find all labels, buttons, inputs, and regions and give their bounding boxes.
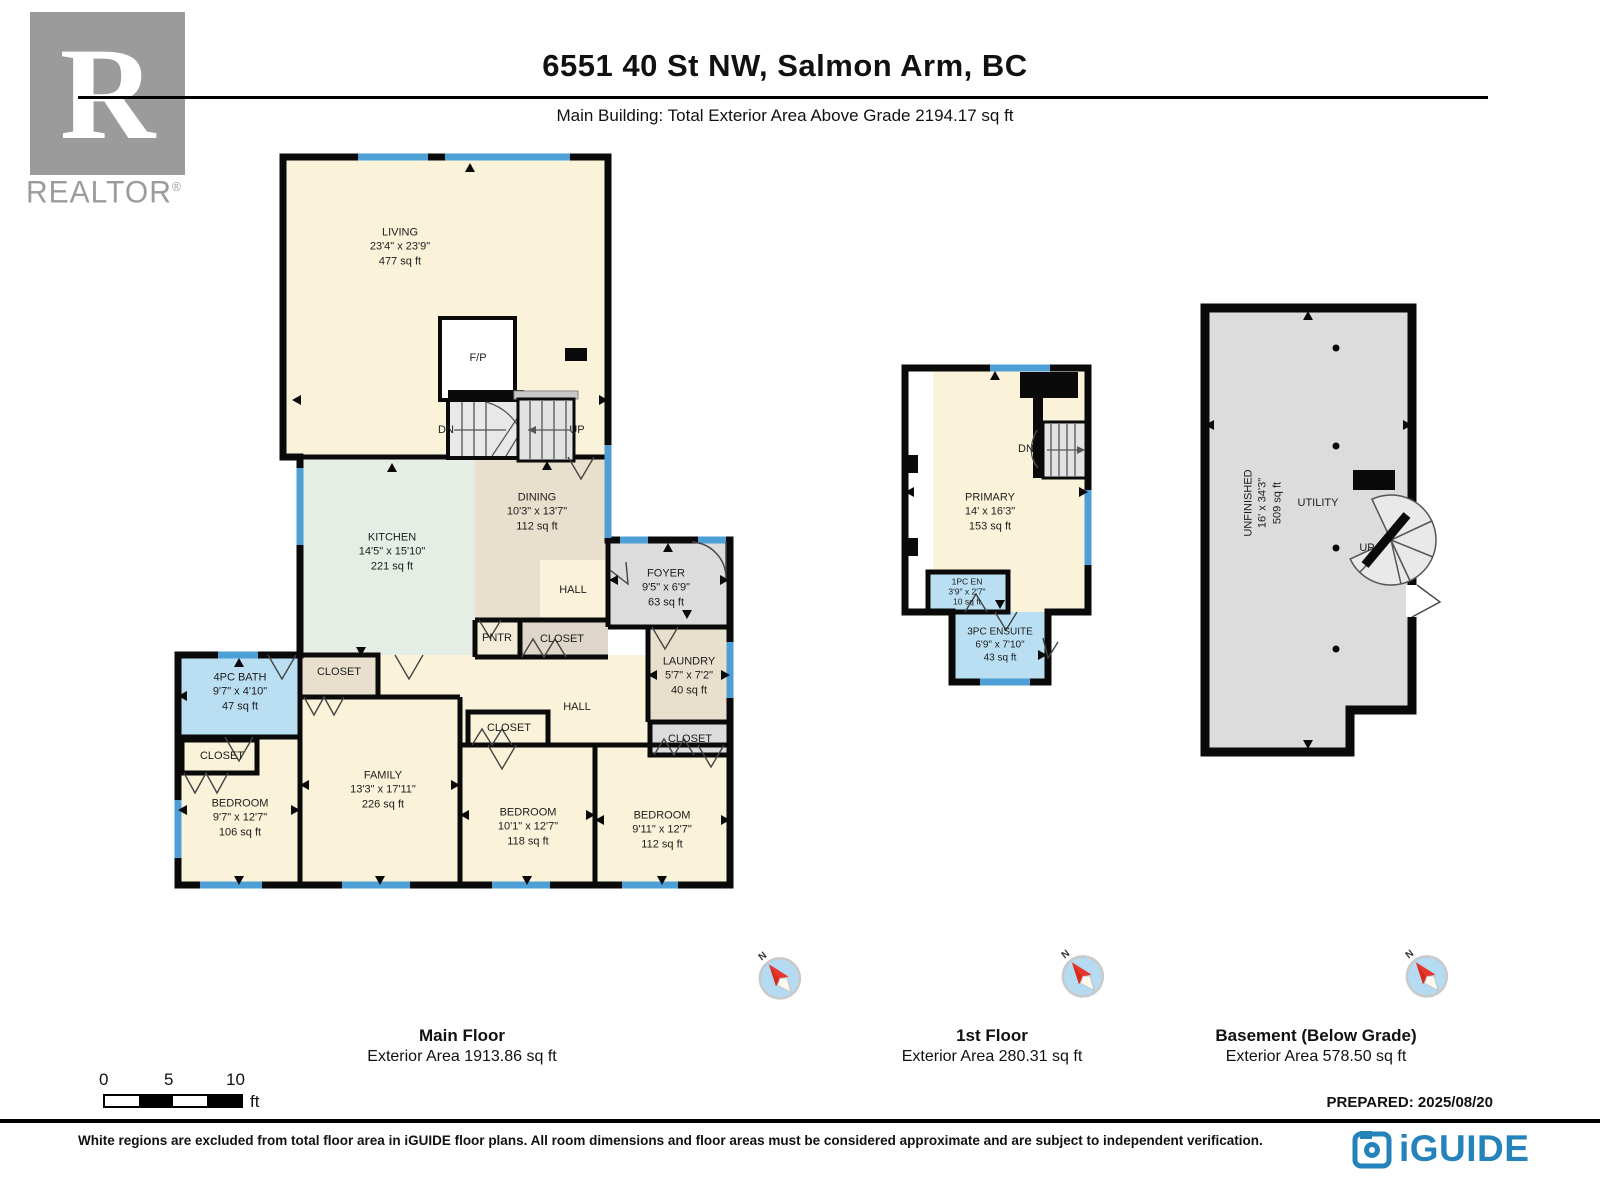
room-label-ensuite: 3PC ENSUITE6'9" x 7'10"43 sq ft <box>967 626 1033 665</box>
room-label-bedroom-right: BEDROOM9'11" x 12'7"112 sq ft <box>632 809 692 852</box>
hall-upper-label: HALL <box>559 584 587 596</box>
scale-bar <box>103 1094 243 1108</box>
closet-right-label: CLOSET <box>668 733 712 745</box>
page-subtitle: Main Building: Total Exterior Area Above… <box>0 106 1570 126</box>
realtor-logo: R <box>30 12 185 175</box>
room-label-primary: PRIMARY14' x 16'3"153 sq ft <box>965 491 1015 534</box>
room-label-dining: DINING10'3" x 13'7"112 sq ft <box>507 491 567 534</box>
disclaimer-text: White regions are excluded from total fl… <box>78 1133 1278 1148</box>
closet-a-label: CLOSET <box>317 666 361 678</box>
pantry-label: PNTR <box>482 632 512 644</box>
realtor-r-glyph: R <box>60 28 155 160</box>
room-label-kitchen: KITCHEN14'5" x 15'10"221 sq ft <box>359 531 425 574</box>
title-underline <box>78 96 1488 99</box>
stairs-dn-label-2: DN <box>1018 443 1034 455</box>
iguide-logo: iGUIDE <box>1352 1128 1529 1170</box>
utility-label: UTILITY <box>1298 497 1339 509</box>
iguide-wordmark: iGUIDE <box>1399 1128 1529 1170</box>
closet-left-label: CLOSET <box>200 750 244 762</box>
room-label-bedroom-mid: BEDROOM10'1" x 12'7"118 sq ft <box>498 806 558 849</box>
page-title: 6551 40 St NW, Salmon Arm, BC <box>0 48 1570 84</box>
room-label-bedroom-left: BEDROOM9'7" x 12'7"106 sq ft <box>212 797 269 840</box>
room-label-foyer: FOYER9'5" x 6'9"63 sq ft <box>642 567 690 610</box>
fireplace-label: F/P <box>469 352 486 364</box>
room-label-laundry: LAUNDRY5'7" x 7'2"40 sq ft <box>663 655 715 698</box>
room-label-living: LIVING23'4" x 23'9"477 sq ft <box>370 226 430 269</box>
caption-basement: Basement (Below Grade)Exterior Area 578.… <box>1215 1026 1416 1066</box>
footer-divider <box>0 1119 1600 1123</box>
room-label-bath: 4PC BATH9'7" x 4'10"47 sq ft <box>213 671 267 714</box>
hall-lower-label: HALL <box>563 701 591 713</box>
prepared-date: PREPARED: 2025/08/20 <box>1193 1094 1493 1111</box>
compass-basement: N <box>1394 940 1456 1004</box>
room-label-unfinished: UNFINISHED16' x 34'3"509 sq ft <box>1242 469 1285 536</box>
stairs-up-label-2: UP <box>1359 542 1374 554</box>
scale-unit: ft <box>250 1092 259 1112</box>
room-label-family: FAMILY13'3" x 17'11"226 sq ft <box>350 769 416 812</box>
caption-first-floor: 1st FloorExterior Area 280.31 sq ft <box>902 1026 1083 1066</box>
compass-first: N <box>1050 940 1112 1004</box>
room-label-1pc-en: 1PC EN3'9" x 2'7"10 sq ft <box>948 577 985 608</box>
stairs-up-label: UP <box>569 424 584 436</box>
iguide-icon <box>1352 1129 1392 1169</box>
caption-main-floor: Main FloorExterior Area 1913.86 sq ft <box>367 1026 556 1066</box>
compass-main: N <box>747 942 809 1006</box>
basement-plan <box>1195 300 1465 770</box>
stairs-dn-label: DN <box>438 424 454 436</box>
closet-mid-label: CLOSET <box>487 722 531 734</box>
floorplan-page: R REALTOR® 6551 40 St NW, Salmon Arm, BC… <box>0 0 1600 1200</box>
closet-upper-label: CLOSET <box>540 633 584 645</box>
